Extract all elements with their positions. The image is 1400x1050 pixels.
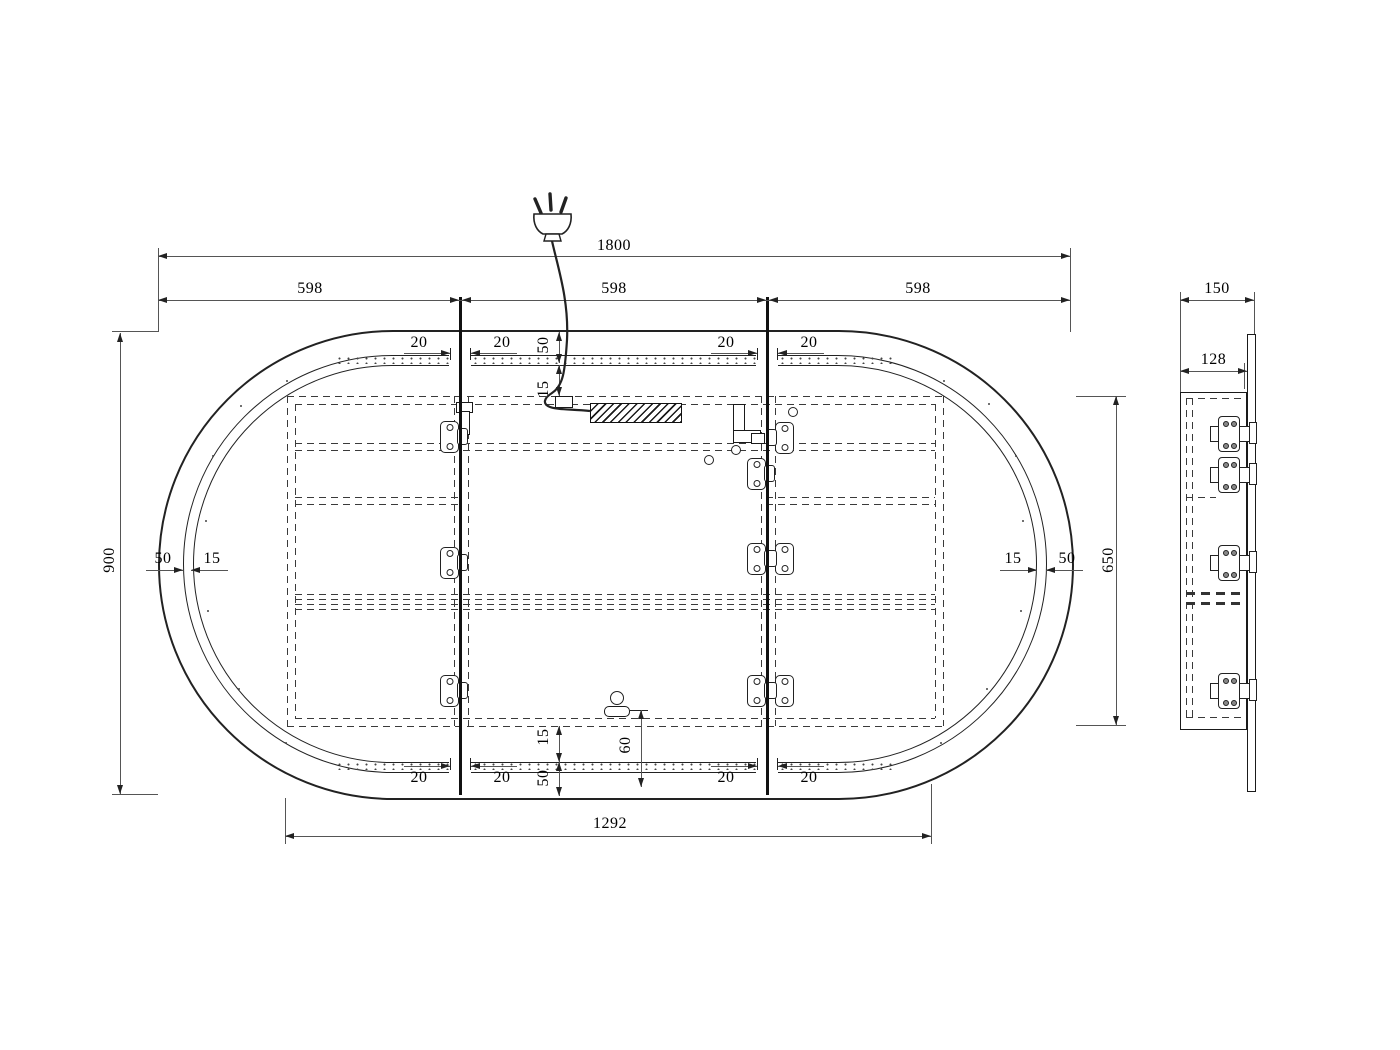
dim-line — [641, 710, 642, 787]
concealed-hinge-icon — [775, 543, 794, 575]
band-speckle — [240, 405, 242, 407]
band-speckle — [1022, 520, 1024, 522]
screw-icon — [753, 697, 760, 704]
side-hidden-line — [1186, 398, 1243, 399]
band-speckle — [212, 455, 214, 457]
shelf-line — [295, 450, 935, 451]
dim-overall-width: 1800 — [584, 238, 644, 254]
arrowhead — [1113, 716, 1119, 725]
arrowhead — [556, 753, 562, 762]
band-speckle — [1015, 455, 1017, 457]
dim-door-gap: 20 — [406, 770, 432, 786]
screw-icon — [446, 443, 453, 450]
extension-line — [1070, 248, 1071, 332]
band-speckle — [286, 380, 288, 382]
carcass-outline — [287, 396, 288, 726]
side-hidden-line — [1186, 398, 1187, 722]
extension-line — [112, 794, 158, 795]
dim-line — [158, 300, 1070, 301]
side-hidden-line — [1192, 398, 1193, 722]
arrowhead — [778, 350, 787, 356]
carcass-outline — [287, 396, 943, 397]
arrowhead — [556, 332, 562, 341]
dim-strip: 15 — [199, 551, 225, 567]
arrowhead — [556, 726, 562, 735]
screw-icon — [1223, 572, 1229, 578]
led-strip-top-left — [335, 356, 450, 364]
arrowhead — [1180, 297, 1189, 303]
shelf-line — [295, 443, 935, 444]
shelf-line — [295, 604, 935, 605]
band-speckle — [205, 520, 207, 522]
shelf-line — [295, 599, 935, 600]
strip-end-tick — [450, 348, 451, 360]
plug-prong — [535, 199, 541, 213]
dim-door-gap: 20 — [796, 770, 822, 786]
screw-icon — [1231, 443, 1237, 449]
dim-overall-height: 900 — [102, 537, 118, 583]
screw-icon — [1231, 462, 1237, 468]
screw-icon — [781, 678, 788, 685]
dim-door-gap: 20 — [489, 770, 515, 786]
screw-icon — [1231, 421, 1237, 427]
arrowhead — [174, 567, 183, 573]
dim-line — [120, 333, 121, 794]
dim-side-total-depth: 150 — [1180, 281, 1254, 297]
arrowhead — [441, 350, 450, 356]
band-speckle — [986, 688, 988, 690]
screw-icon — [1223, 484, 1229, 490]
door-joint-line — [766, 297, 769, 795]
band-speckle — [238, 688, 240, 690]
arrowhead — [778, 763, 787, 769]
shelf-line — [295, 594, 935, 595]
arrowhead — [556, 354, 562, 363]
hinge-mount — [1249, 422, 1257, 444]
dim-sensor-offset: 60 — [618, 733, 634, 757]
arrowhead — [638, 710, 644, 719]
screw-icon — [753, 678, 760, 685]
extension-line — [1254, 292, 1255, 334]
door-joint-line — [459, 297, 462, 795]
concealed-hinge-icon — [440, 675, 459, 707]
arrowhead — [117, 785, 123, 794]
carcass-inner-outline — [935, 404, 936, 718]
plug-prong — [550, 194, 551, 210]
arrowhead — [1028, 567, 1037, 573]
arrowhead — [1046, 567, 1055, 573]
plug-prong — [561, 198, 566, 212]
dim-frame: 50 — [536, 333, 552, 357]
screw-icon — [1223, 462, 1229, 468]
shelf-line — [766, 504, 935, 505]
arrowhead — [450, 297, 459, 303]
arrowhead — [757, 297, 766, 303]
side-hinge-icon — [1210, 666, 1260, 714]
dim-line — [1180, 300, 1254, 301]
band-speckle — [943, 380, 945, 382]
arrowhead — [158, 253, 167, 259]
side-shelf-line — [1186, 592, 1243, 595]
side-hinge-icon — [1210, 538, 1260, 586]
concealed-hinge-icon — [747, 543, 766, 575]
dim-strip: 15 — [536, 377, 552, 401]
arrowhead — [922, 833, 931, 839]
arrowhead — [471, 763, 480, 769]
power-plug-icon — [534, 214, 571, 234]
dim-door-gap: 20 — [713, 335, 739, 351]
led-strip-top-center — [471, 356, 756, 364]
band-speckle — [207, 610, 209, 612]
screw-icon — [753, 546, 760, 553]
extension-line — [1076, 725, 1126, 726]
led-strip-top-right — [778, 356, 895, 364]
bracket — [751, 433, 765, 444]
shelf-line — [766, 497, 935, 498]
screw-icon — [1231, 550, 1237, 556]
extension-line — [112, 331, 158, 332]
dim-frame: 50 — [536, 766, 552, 790]
led-driver-hatched-box — [590, 403, 682, 423]
screw-icon — [1223, 443, 1229, 449]
strip-end-tick — [757, 348, 758, 360]
concealed-hinge-icon — [775, 675, 794, 707]
dim-strip: 15 — [536, 725, 552, 749]
arrowhead — [285, 833, 294, 839]
arrowhead — [462, 297, 471, 303]
dim-line — [1180, 371, 1247, 372]
dim-door-gap: 20 — [796, 335, 822, 351]
side-hinge-icon — [1210, 450, 1260, 498]
screw-icon — [446, 569, 453, 576]
screw-icon — [753, 480, 760, 487]
screw-hole — [788, 407, 798, 417]
arrowhead — [556, 387, 562, 396]
band-speckle — [940, 742, 942, 744]
dim-door-gap: 20 — [489, 335, 515, 351]
arrowhead — [769, 297, 778, 303]
strip-end-tick — [757, 758, 758, 770]
arrowhead — [638, 778, 644, 787]
dim-strip: 15 — [1000, 551, 1026, 567]
screw-icon — [446, 697, 453, 704]
screw-icon — [446, 550, 453, 557]
arrowhead — [556, 762, 562, 771]
dim-door-gap: 20 — [406, 335, 432, 351]
dim-line — [285, 836, 931, 837]
arrowhead — [441, 763, 450, 769]
dim-segment: 598 — [888, 281, 948, 297]
arrowhead — [1180, 368, 1189, 374]
hinge-mount — [1249, 679, 1257, 701]
dim-frame: 50 — [150, 551, 176, 567]
band-speckle — [285, 742, 287, 744]
dim-door-gap: 20 — [713, 770, 739, 786]
concealed-hinge-icon — [440, 421, 459, 453]
concealed-hinge-icon — [747, 675, 766, 707]
carcass-outline — [943, 396, 944, 726]
arrowhead — [158, 297, 167, 303]
arrowhead — [117, 333, 123, 342]
extension-line — [931, 784, 932, 844]
screw-icon — [753, 461, 760, 468]
dim-frame: 50 — [1054, 551, 1080, 567]
plug-collar — [544, 234, 561, 241]
hinge-mount — [1249, 463, 1257, 485]
bracket — [733, 404, 745, 432]
concealed-hinge-icon — [440, 547, 459, 579]
screw-icon — [1223, 421, 1229, 427]
band-speckle — [1020, 610, 1022, 612]
dim-carcass-width: 1292 — [578, 816, 642, 832]
carcass-inner-outline — [295, 404, 296, 718]
concealed-hinge-icon — [747, 458, 766, 490]
arrowhead — [1061, 297, 1070, 303]
cable-clamp — [555, 396, 573, 408]
carcass-outline — [287, 726, 943, 727]
screw-icon — [1223, 678, 1229, 684]
touch-sensor-icon — [604, 706, 630, 717]
dim-line — [158, 256, 1070, 257]
screw-icon — [446, 678, 453, 685]
dim-segment: 598 — [280, 281, 340, 297]
screw-icon — [1223, 700, 1229, 706]
touch-sensor-icon — [610, 691, 624, 705]
arrowhead — [748, 350, 757, 356]
screw-icon — [1231, 572, 1237, 578]
arrowhead — [191, 567, 200, 573]
arrowhead — [1245, 297, 1254, 303]
arrowhead — [1113, 396, 1119, 405]
screw-icon — [781, 425, 788, 432]
band-speckle — [988, 403, 990, 405]
side-shelf-line — [1186, 602, 1243, 605]
partition-line — [468, 396, 469, 726]
carcass-inner-outline — [295, 718, 935, 719]
arrowhead — [556, 365, 562, 374]
screw-icon — [781, 546, 788, 553]
arrowhead — [1238, 368, 1247, 374]
screw-icon — [1231, 678, 1237, 684]
side-hidden-line — [1186, 717, 1243, 718]
screw-icon — [753, 565, 760, 572]
extension-line — [1180, 292, 1181, 392]
technical-drawing-canvas: 1800 598 598 598 900 650 1292 — [0, 0, 1400, 1050]
shelf-line — [295, 609, 935, 610]
arrowhead — [471, 350, 480, 356]
screw-icon — [781, 565, 788, 572]
screw-icon — [781, 697, 788, 704]
screw-icon — [781, 444, 788, 451]
dim-side-cabinet-depth: 128 — [1180, 352, 1247, 368]
hinge-mount — [1249, 551, 1257, 573]
shelf-line — [295, 504, 459, 505]
dim-segment: 598 — [584, 281, 644, 297]
arrowhead — [748, 763, 757, 769]
screw-hole — [704, 455, 714, 465]
dim-cavity-height: 650 — [1101, 537, 1117, 583]
screw-icon — [1231, 700, 1237, 706]
arrowhead — [556, 787, 562, 796]
screw-hole — [731, 445, 741, 455]
screw-icon — [1231, 484, 1237, 490]
concealed-hinge-icon — [775, 422, 794, 454]
strip-end-tick — [450, 758, 451, 770]
screw-icon — [446, 424, 453, 431]
shelf-line — [295, 497, 459, 498]
screw-icon — [1223, 550, 1229, 556]
arrowhead — [1061, 253, 1070, 259]
extension-line — [158, 248, 159, 332]
